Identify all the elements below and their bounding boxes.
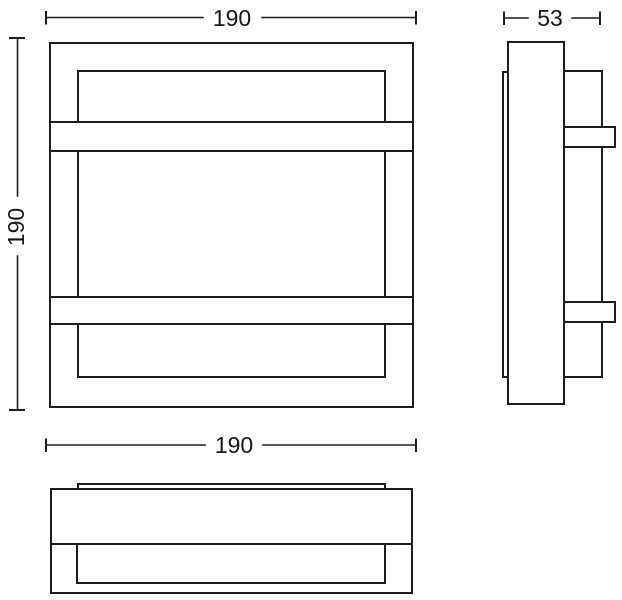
front-view [50, 43, 413, 407]
side-view-main-body [508, 42, 564, 404]
front-view-crossbar-top-fill [50, 122, 413, 151]
side-view-diffuser-box [564, 71, 602, 377]
dimension-drawing-svg: 190 190 53 [0, 0, 622, 600]
bottom-width-dimension: 190 [46, 432, 416, 458]
front-view-inner-frame [78, 71, 385, 377]
bottom-width-dimension-label: 190 [215, 432, 253, 458]
front-width-dimension: 190 [46, 5, 416, 31]
side-view-crossbar-bottom-protrusion [564, 302, 615, 322]
side-view-crossbar-top-protrusion [564, 127, 615, 147]
front-view-outer-outline [50, 43, 413, 407]
bottom-view-outer-outline [51, 489, 412, 593]
front-height-dimension-label: 190 [3, 208, 29, 246]
side-view [503, 42, 615, 404]
front-width-dimension-label: 190 [213, 5, 251, 31]
side-depth-dimension-label: 53 [537, 5, 563, 31]
bottom-view [51, 484, 412, 593]
side-depth-dimension: 53 [504, 5, 600, 31]
front-view-crossbar-bottom-fill [50, 297, 413, 324]
dimension-drawing-canvas: 190 190 53 [0, 0, 622, 600]
front-height-dimension: 190 [3, 38, 29, 410]
